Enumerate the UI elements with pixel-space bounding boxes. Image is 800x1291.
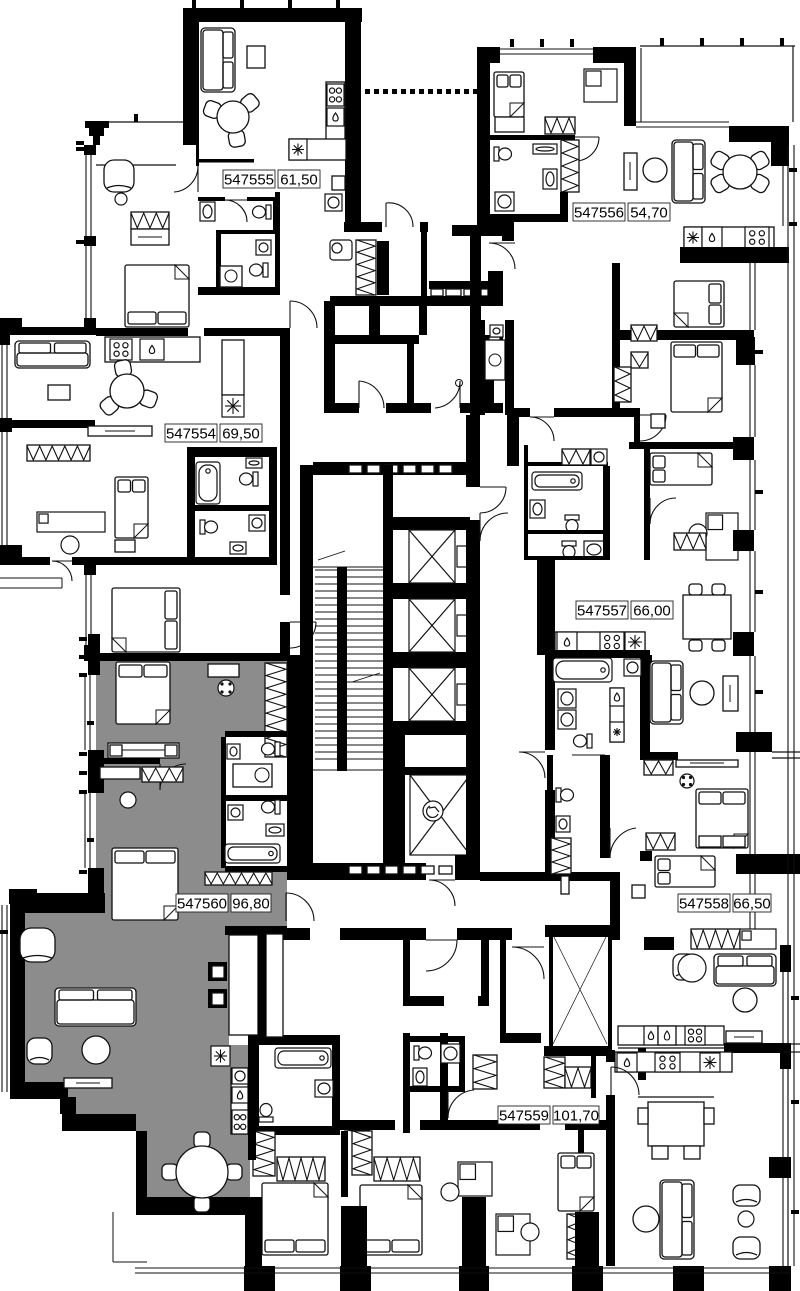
svg-text:547555: 547555 <box>224 172 274 189</box>
svg-text:547557: 547557 <box>577 603 627 620</box>
svg-text:69,50: 69,50 <box>222 426 260 443</box>
svg-text:54,70: 54,70 <box>630 205 668 222</box>
svg-text:96,80: 96,80 <box>232 896 270 913</box>
svg-text:547556: 547556 <box>574 205 624 222</box>
svg-text:547560: 547560 <box>177 896 227 913</box>
svg-text:66,00: 66,00 <box>633 603 671 620</box>
svg-text:101,70: 101,70 <box>553 1108 599 1125</box>
svg-text:66,50: 66,50 <box>733 896 771 913</box>
svg-text:61,50: 61,50 <box>280 172 318 189</box>
svg-text:547559: 547559 <box>499 1108 549 1125</box>
svg-text:547558: 547558 <box>679 896 729 913</box>
svg-text:547554: 547554 <box>166 426 216 443</box>
